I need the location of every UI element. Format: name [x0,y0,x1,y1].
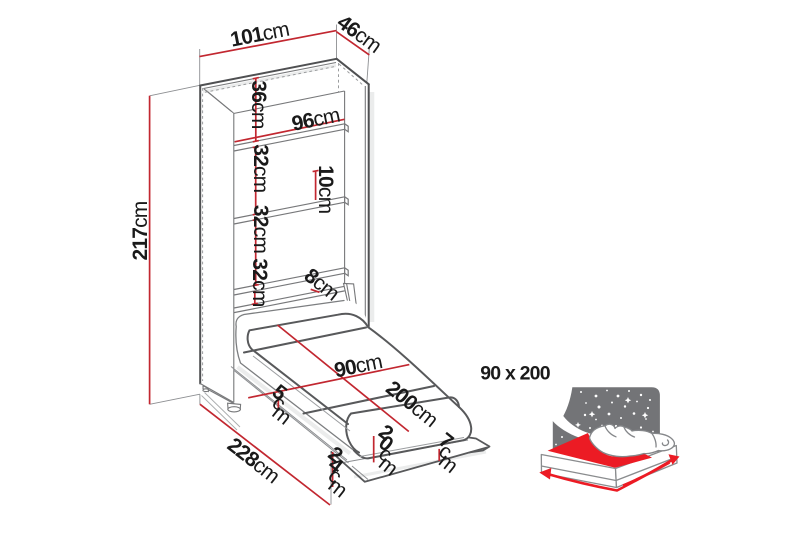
svg-text:8cm: 8cm [300,264,344,305]
svg-text:36cm: 36cm [247,80,270,128]
svg-text:90 x 200: 90 x 200 [480,363,550,385]
svg-text:32cm: 32cm [249,205,272,253]
svg-text:10cm: 10cm [314,165,337,213]
svg-text:217cm: 217cm [129,201,152,260]
svg-text:32cm: 32cm [249,144,272,192]
svg-text:101cm: 101cm [228,18,291,52]
svg-text:46cm: 46cm [333,11,386,58]
svg-text:32cm: 32cm [248,258,271,306]
svg-text:228cm: 228cm [223,433,284,488]
